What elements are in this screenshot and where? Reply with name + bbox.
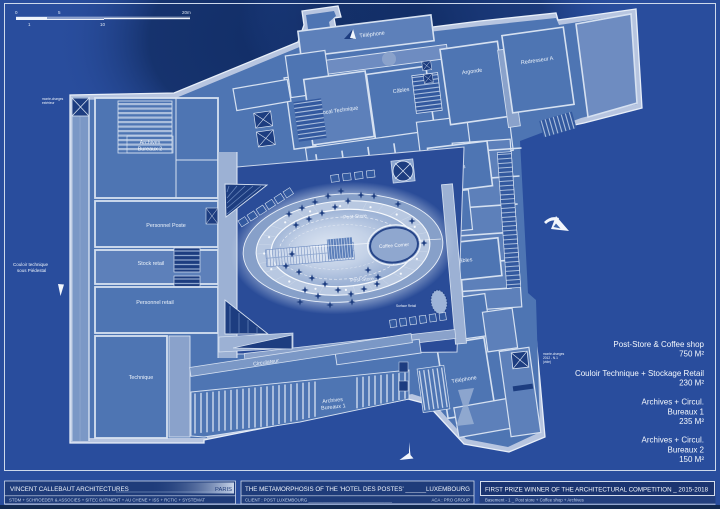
svg-text:Technique: Technique <box>129 375 154 381</box>
svg-text:150 M²: 150 M² <box>679 455 704 464</box>
svg-text:Surface Retail: Surface Retail <box>396 304 416 308</box>
svg-text:Couloir technique: Couloir technique <box>13 262 49 267</box>
svg-text:235 M²: 235 M² <box>679 417 704 426</box>
svg-text:LUXEMBOURG: LUXEMBOURG <box>426 486 470 493</box>
svg-text:VINCENT CALLEBAUT ARCHITECTURE: VINCENT CALLEBAUT ARCHITECTURES <box>10 486 129 493</box>
svg-text:Stock retail: Stock retail <box>138 261 165 267</box>
svg-text:CLIENT : POST LUXEMBOURG _____: CLIENT : POST LUXEMBOURG _______________… <box>245 498 393 503</box>
svg-text:750 M²: 750 M² <box>679 350 704 359</box>
svg-text:Archives + Circul.: Archives + Circul. <box>642 398 704 407</box>
svg-text:extérieur: extérieur <box>42 101 55 105</box>
svg-text:Personnel Poste: Personnel Poste <box>146 223 186 229</box>
svg-text:Couloir Technique + Stockage R: Couloir Technique + Stockage Retail <box>575 369 704 378</box>
svg-text:FIRST PRIZE WINNER OF THE ARCH: FIRST PRIZE WINNER OF THE ARCHITECTURAL … <box>485 487 709 494</box>
svg-text:PARIS: PARIS <box>215 487 232 493</box>
svg-text:THE METAMORPHOSIS OF THE 'HOTE: THE METAMORPHOSIS OF THE 'HOTEL DES POST… <box>245 486 427 493</box>
svg-text:Basement - 1 _ Post store + Co: Basement - 1 _ Post store + Coffee shop … <box>485 498 584 503</box>
svg-text:230 M²: 230 M² <box>679 379 704 388</box>
svg-text:ACA : PRO GROUP: ACA : PRO GROUP <box>432 498 471 503</box>
svg-text:STDM + SCHROEDER & ASSOCIES +: STDM + SCHROEDER & ASSOCIES + SITEC BATI… <box>9 498 205 503</box>
svg-text:Archives: Archives <box>140 140 161 146</box>
svg-text:Personnel retail: Personnel retail <box>136 300 173 306</box>
svg-text:Post-Store & Coffee shop: Post-Store & Coffee shop <box>613 340 704 349</box>
svg-text:(vide): (vide) <box>543 360 551 364</box>
svg-text:Bureaux 2: Bureaux 2 <box>138 147 163 153</box>
svg-text:10: 10 <box>100 22 106 27</box>
svg-text:Bureaux 1: Bureaux 1 <box>668 408 705 417</box>
svg-text:sous Piédestal: sous Piédestal <box>17 268 46 273</box>
svg-text:Bureaux 2: Bureaux 2 <box>668 446 705 455</box>
svg-text:20m: 20m <box>182 10 191 15</box>
svg-text:Archives + Circul.: Archives + Circul. <box>642 436 704 445</box>
